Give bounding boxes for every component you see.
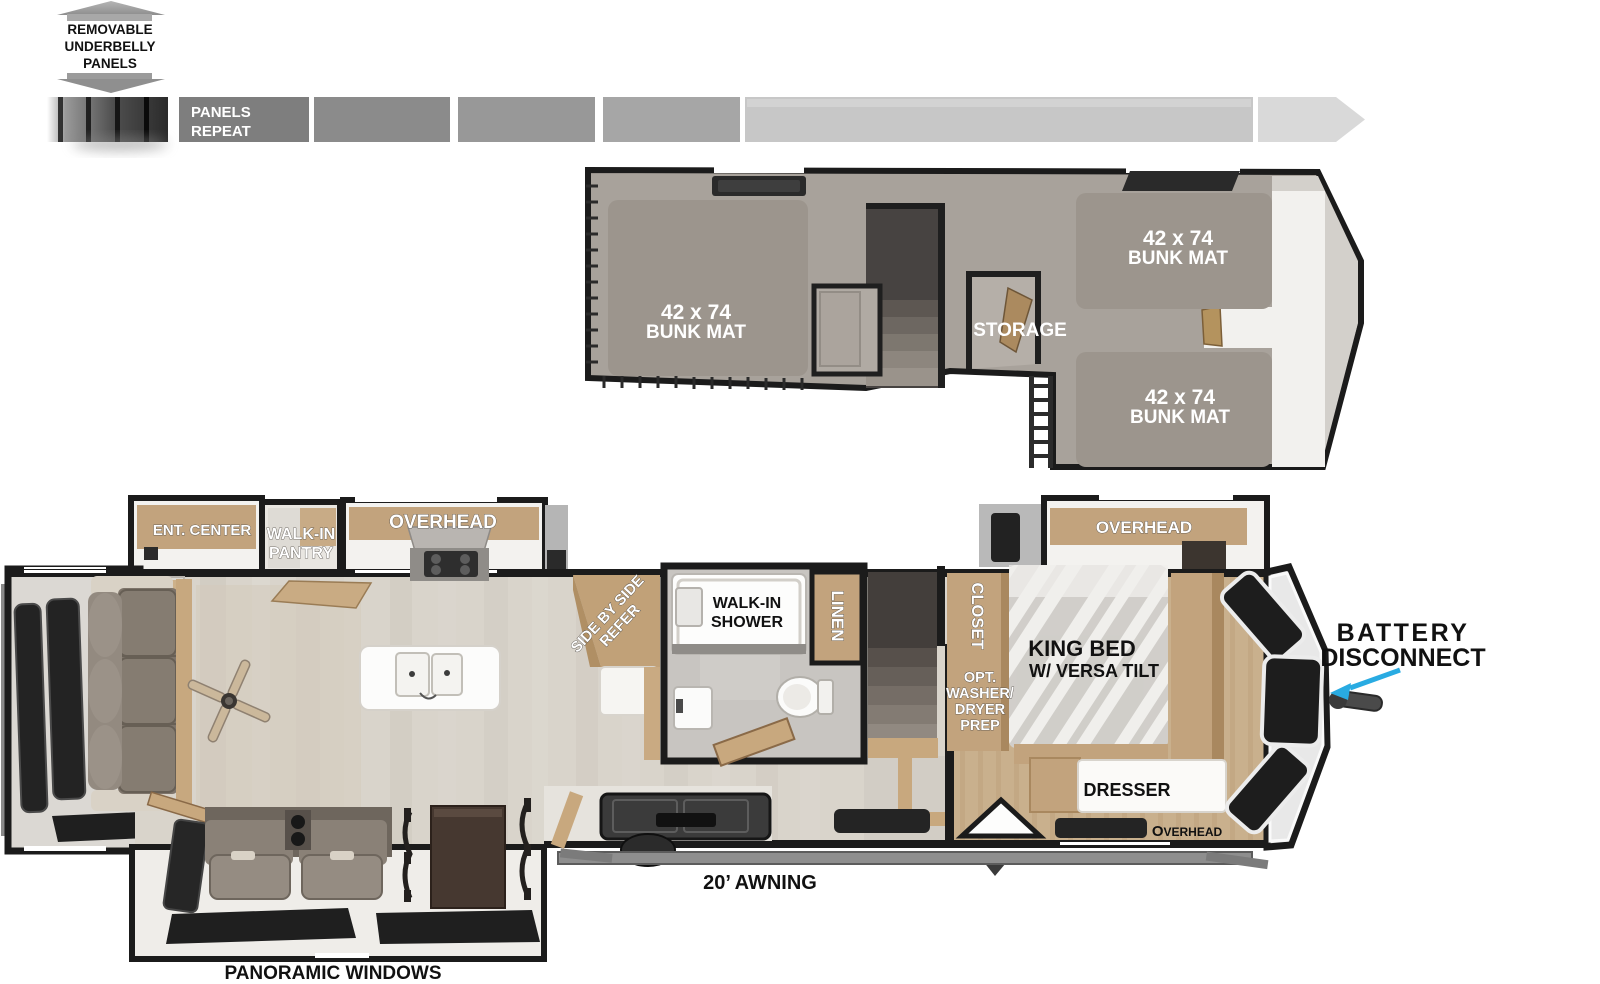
- svg-text:DRESSER: DRESSER: [1083, 780, 1170, 800]
- svg-text:OVERHEAD: OVERHEAD: [1152, 823, 1223, 840]
- svg-text:PANORAMIC WINDOWS: PANORAMIC WINDOWS: [224, 963, 441, 984]
- svg-text:PANTRY: PANTRY: [269, 545, 333, 562]
- svg-text:CLOSET: CLOSET: [968, 583, 986, 650]
- svg-text:KING BED: KING BED: [1028, 636, 1136, 661]
- svg-text:20’ AWNING: 20’ AWNING: [703, 872, 817, 894]
- svg-text:REPEAT: REPEAT: [191, 123, 251, 140]
- svg-text:OPT.: OPT.: [964, 670, 996, 686]
- svg-text:BUNK MAT: BUNK MAT: [1130, 407, 1230, 428]
- svg-text:OVERHEAD: OVERHEAD: [389, 512, 497, 533]
- svg-text:PANELS: PANELS: [83, 56, 137, 71]
- svg-text:WALK-IN: WALK-IN: [267, 526, 335, 543]
- svg-text:DRYER: DRYER: [955, 702, 1006, 718]
- svg-text:W/ VERSA TILT: W/ VERSA TILT: [1029, 661, 1159, 681]
- svg-text:REMOVABLE: REMOVABLE: [67, 22, 152, 37]
- svg-text:42 x 74: 42 x 74: [661, 301, 731, 324]
- svg-text:WALK-IN: WALK-IN: [713, 595, 781, 612]
- svg-text:LINEN: LINEN: [828, 591, 847, 642]
- svg-text:BUNK MAT: BUNK MAT: [646, 322, 746, 343]
- svg-text:STORAGE: STORAGE: [973, 320, 1067, 341]
- svg-text:SHOWER: SHOWER: [711, 614, 783, 631]
- svg-text:ENT. CENTER: ENT. CENTER: [153, 522, 252, 539]
- svg-text:BUNK MAT: BUNK MAT: [1128, 248, 1228, 269]
- svg-text:DISCONNECT: DISCONNECT: [1320, 644, 1485, 672]
- svg-text:PREP: PREP: [960, 718, 1000, 734]
- svg-text:WASHER/: WASHER/: [946, 686, 1014, 702]
- svg-text:42 x 74: 42 x 74: [1145, 386, 1215, 409]
- svg-text:42 x 74: 42 x 74: [1143, 227, 1213, 250]
- svg-text:OVERHEAD: OVERHEAD: [1096, 518, 1192, 537]
- svg-text:BATTERY: BATTERY: [1337, 619, 1470, 647]
- svg-text:PANELS: PANELS: [191, 104, 251, 121]
- svg-text:UNDERBELLY: UNDERBELLY: [64, 39, 155, 54]
